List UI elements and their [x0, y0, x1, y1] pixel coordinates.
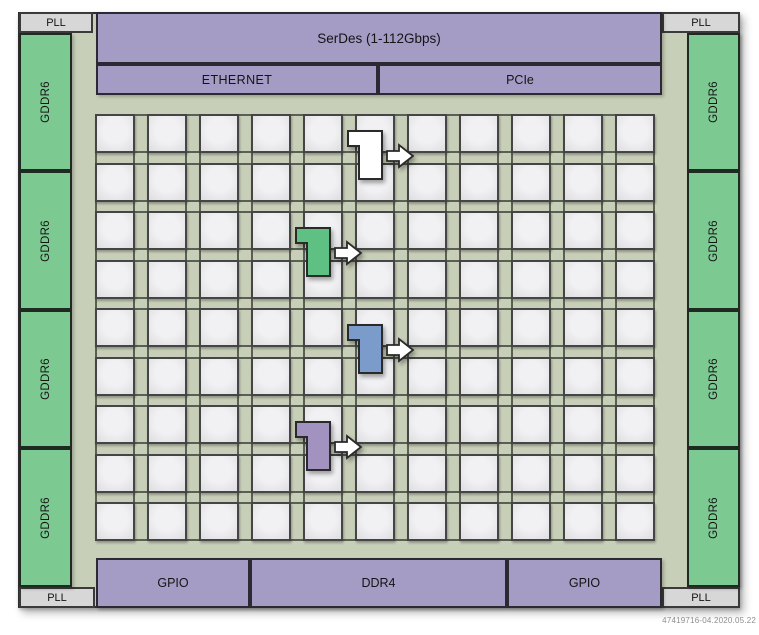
grid-tile — [355, 260, 395, 299]
grid-tile — [95, 163, 135, 202]
grid-tile — [147, 502, 187, 541]
grid-tile — [199, 405, 239, 444]
grid-tile — [615, 260, 655, 299]
grid-tile — [251, 308, 291, 347]
ethernet-block: ETHERNET — [96, 64, 378, 95]
grid-tile — [147, 114, 187, 153]
grid-tile — [459, 308, 499, 347]
grid-tile — [459, 163, 499, 202]
grid-tile — [355, 308, 395, 347]
gddr6-block-left-2: GDDR6 — [19, 171, 72, 310]
grid-tile — [251, 114, 291, 153]
grid-tile — [407, 211, 447, 250]
grid-tile — [563, 211, 603, 250]
grid-tile — [563, 308, 603, 347]
grid-tile — [511, 502, 551, 541]
noc-grid — [95, 114, 655, 541]
grid-tile — [147, 357, 187, 396]
grid-tile — [355, 357, 395, 396]
grid-tile — [407, 308, 447, 347]
gddr6-label: GDDR6 — [40, 220, 52, 262]
pll-block-bottom-right: PLL — [662, 587, 740, 608]
grid-tile — [355, 114, 395, 153]
grid-tile — [407, 357, 447, 396]
grid-tile — [95, 502, 135, 541]
grid-tile — [407, 163, 447, 202]
grid-tile — [459, 211, 499, 250]
grid-tile — [563, 454, 603, 493]
gddr6-label: GDDR6 — [40, 497, 52, 539]
grid-tile — [615, 357, 655, 396]
gpio-block-right: GPIO — [507, 558, 662, 608]
grid-tile — [251, 357, 291, 396]
grid-tile — [511, 211, 551, 250]
grid-tile — [251, 405, 291, 444]
gddr6-block-right-2: GDDR6 — [687, 171, 740, 310]
gddr6-block-right-3: GDDR6 — [687, 310, 740, 448]
grid-tile — [407, 114, 447, 153]
grid-tile — [407, 405, 447, 444]
figure-canvas: PLL PLL PLL PLL GDDR6 GDDR6 GDDR6 GDDR6 … — [0, 0, 759, 635]
grid-tile — [563, 502, 603, 541]
grid-tile — [563, 357, 603, 396]
grid-tile — [251, 260, 291, 299]
grid-tile — [355, 211, 395, 250]
grid-tile — [199, 357, 239, 396]
grid-tile — [459, 260, 499, 299]
grid-tile — [615, 502, 655, 541]
gddr6-label: GDDR6 — [708, 220, 720, 262]
gddr6-label: GDDR6 — [708, 497, 720, 539]
grid-tile — [147, 260, 187, 299]
grid-tile — [199, 308, 239, 347]
grid-tile — [615, 163, 655, 202]
grid-tile — [459, 357, 499, 396]
serdes-block: SerDes (1-112Gbps) — [96, 12, 662, 64]
grid-tile — [199, 211, 239, 250]
grid-tile — [147, 454, 187, 493]
grid-tile — [95, 405, 135, 444]
grid-tile — [615, 211, 655, 250]
grid-tile — [251, 502, 291, 541]
grid-tile — [355, 405, 395, 444]
grid-tile — [615, 454, 655, 493]
grid-tile — [303, 260, 343, 299]
grid-tile — [199, 502, 239, 541]
grid-tile — [563, 405, 603, 444]
gddr6-block-right-1: GDDR6 — [687, 33, 740, 171]
gddr6-block-left-3: GDDR6 — [19, 310, 72, 448]
gddr6-label: GDDR6 — [40, 81, 52, 123]
pcie-block: PCIe — [378, 64, 662, 95]
grid-tile — [251, 211, 291, 250]
grid-tile — [199, 163, 239, 202]
grid-tile — [303, 454, 343, 493]
grid-tile — [511, 308, 551, 347]
grid-tile — [95, 357, 135, 396]
grid-tile — [511, 163, 551, 202]
pll-block-top-left: PLL — [19, 12, 93, 33]
grid-tile — [615, 405, 655, 444]
grid-tile — [303, 357, 343, 396]
pll-block-bottom-left: PLL — [19, 587, 95, 608]
ddr4-block: DDR4 — [250, 558, 507, 608]
grid-tile — [95, 211, 135, 250]
grid-tile — [459, 405, 499, 444]
gddr6-block-left-1: GDDR6 — [19, 33, 72, 171]
grid-tile — [407, 502, 447, 541]
grid-tile — [251, 163, 291, 202]
grid-tile — [407, 454, 447, 493]
grid-tile — [511, 405, 551, 444]
grid-tile — [511, 454, 551, 493]
grid-tile — [563, 163, 603, 202]
grid-tile — [511, 260, 551, 299]
grid-tile — [407, 260, 447, 299]
grid-tile — [355, 454, 395, 493]
grid-tile — [95, 308, 135, 347]
grid-tile — [147, 308, 187, 347]
gddr6-block-left-4: GDDR6 — [19, 448, 72, 587]
grid-tile — [95, 260, 135, 299]
gddr6-label: GDDR6 — [708, 358, 720, 400]
grid-tile — [459, 114, 499, 153]
grid-tile — [199, 260, 239, 299]
grid-tile — [303, 163, 343, 202]
grid-tile — [355, 502, 395, 541]
grid-tile — [303, 114, 343, 153]
grid-tile — [95, 454, 135, 493]
grid-tile — [459, 502, 499, 541]
grid-tile — [147, 405, 187, 444]
grid-tile — [511, 114, 551, 153]
grid-tile — [147, 163, 187, 202]
grid-tile — [511, 357, 551, 396]
grid-tile — [303, 308, 343, 347]
grid-tile — [563, 114, 603, 153]
grid-tile — [303, 211, 343, 250]
grid-tile — [95, 114, 135, 153]
grid-tile — [199, 454, 239, 493]
grid-tile — [615, 114, 655, 153]
grid-tile — [303, 405, 343, 444]
grid-tile — [251, 454, 291, 493]
grid-tile — [199, 114, 239, 153]
grid-tile — [459, 454, 499, 493]
grid-tile — [303, 502, 343, 541]
gddr6-block-right-4: GDDR6 — [687, 448, 740, 587]
grid-tile — [563, 260, 603, 299]
gddr6-label: GDDR6 — [708, 81, 720, 123]
grid-tile — [355, 163, 395, 202]
gddr6-label: GDDR6 — [40, 358, 52, 400]
watermark-text: 47419716-04.2020.05.22 — [662, 616, 756, 625]
grid-tile — [615, 308, 655, 347]
pll-block-top-right: PLL — [662, 12, 740, 33]
gpio-block-left: GPIO — [96, 558, 250, 608]
grid-tile — [147, 211, 187, 250]
